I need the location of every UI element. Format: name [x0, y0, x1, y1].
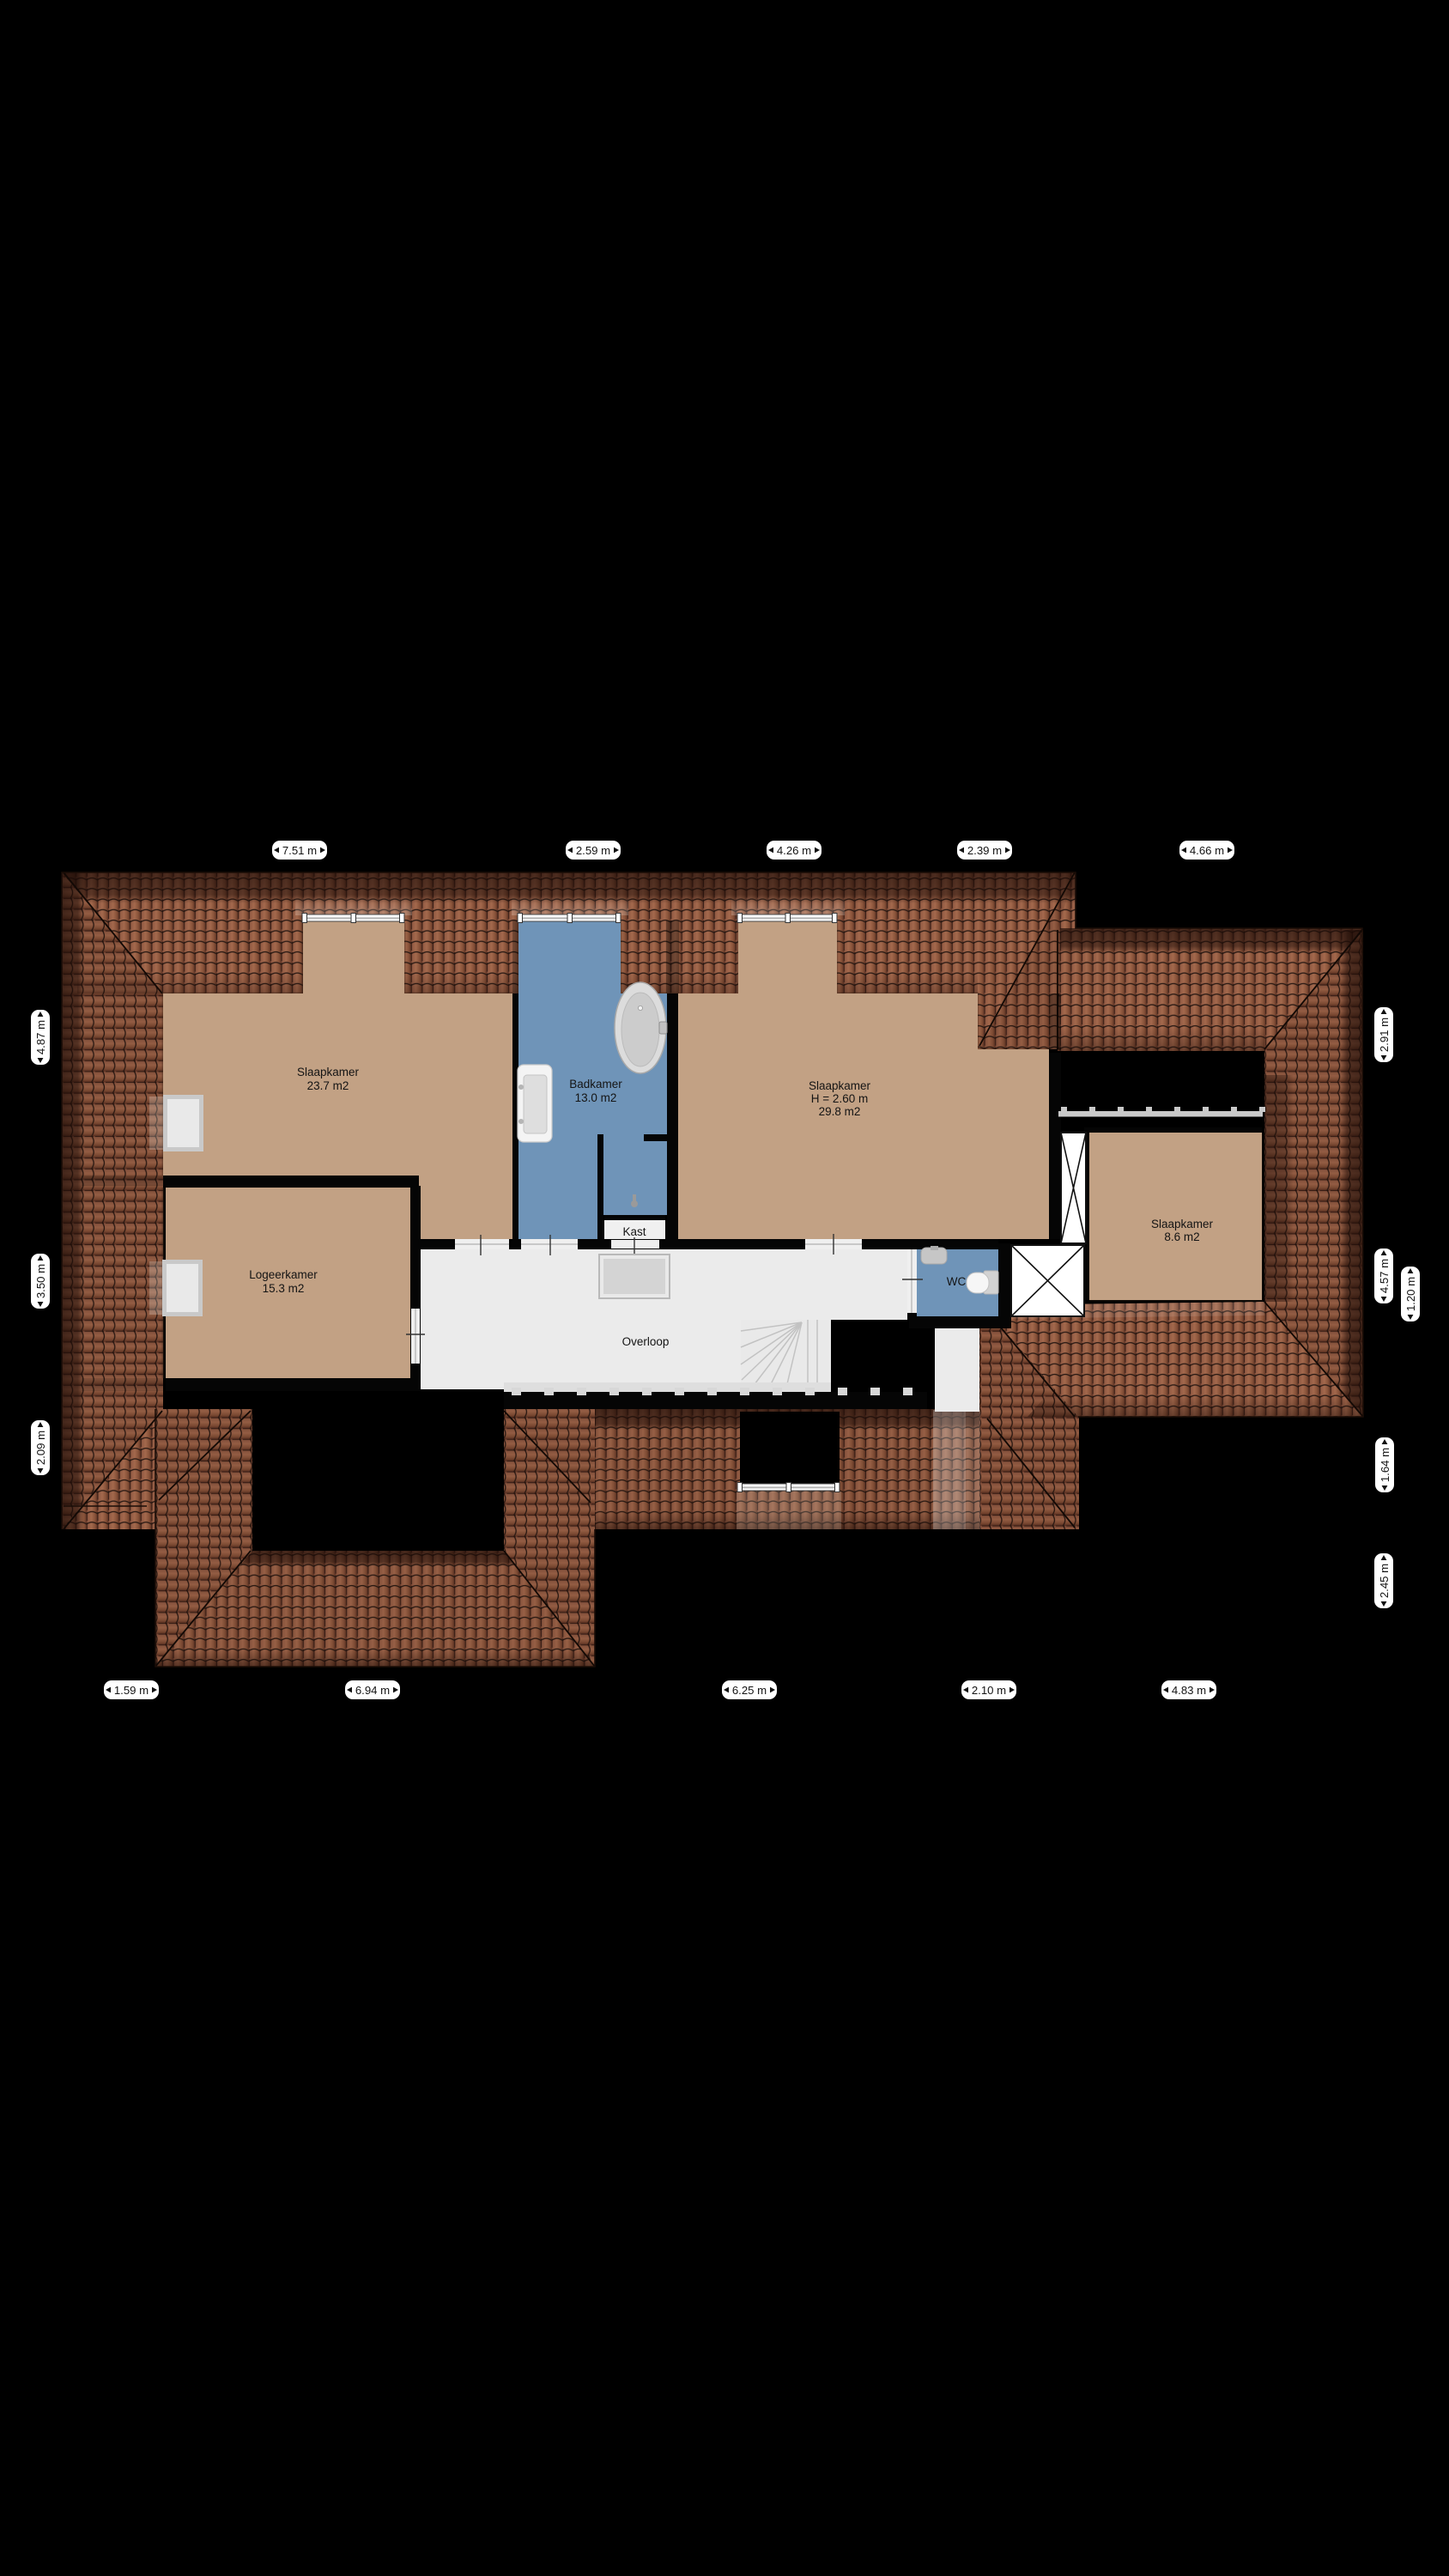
svg-text:Kast: Kast — [622, 1225, 646, 1238]
svg-text:Slaapkamer: Slaapkamer — [809, 1079, 871, 1092]
svg-text:Logeerkamer: Logeerkamer — [249, 1268, 318, 1281]
svg-text:Slaapkamer: Slaapkamer — [297, 1066, 360, 1078]
svg-text:4.87 m: 4.87 m — [34, 1020, 47, 1054]
svg-text:13.0 m2: 13.0 m2 — [575, 1091, 617, 1104]
svg-text:3.50 m: 3.50 m — [34, 1264, 47, 1298]
svg-text:2.10 m: 2.10 m — [972, 1684, 1006, 1697]
svg-text:2.09 m: 2.09 m — [34, 1431, 47, 1465]
svg-text:Badkamer: Badkamer — [569, 1078, 622, 1091]
svg-text:1.64 m: 1.64 m — [1379, 1448, 1391, 1482]
svg-text:2.39 m: 2.39 m — [967, 844, 1002, 857]
svg-text:2.91 m: 2.91 m — [1378, 1018, 1391, 1052]
svg-text:Overloop: Overloop — [622, 1335, 670, 1348]
svg-text:4.66 m: 4.66 m — [1190, 844, 1224, 857]
svg-text:1.59 m: 1.59 m — [114, 1684, 149, 1697]
svg-text:8.6 m2: 8.6 m2 — [1164, 1230, 1199, 1243]
svg-text:15.3 m2: 15.3 m2 — [263, 1282, 305, 1295]
svg-text:29.8 m2: 29.8 m2 — [819, 1105, 861, 1118]
svg-text:4.26 m: 4.26 m — [777, 844, 811, 857]
svg-text:1.20 m: 1.20 m — [1404, 1277, 1417, 1311]
svg-text:Slaapkamer: Slaapkamer — [1151, 1218, 1214, 1230]
svg-text:H = 2.60 m: H = 2.60 m — [811, 1092, 868, 1105]
svg-text:2.45 m: 2.45 m — [1378, 1564, 1391, 1598]
svg-text:2.59 m: 2.59 m — [576, 844, 610, 857]
svg-text:7.51 m: 7.51 m — [282, 844, 317, 857]
svg-text:4.57 m: 4.57 m — [1378, 1259, 1391, 1293]
svg-text:6.25 m: 6.25 m — [732, 1684, 767, 1697]
svg-text:4.83 m: 4.83 m — [1172, 1684, 1206, 1697]
svg-text:23.7 m2: 23.7 m2 — [307, 1079, 349, 1092]
svg-text:6.94 m: 6.94 m — [355, 1684, 390, 1697]
svg-text:WC: WC — [947, 1275, 967, 1288]
